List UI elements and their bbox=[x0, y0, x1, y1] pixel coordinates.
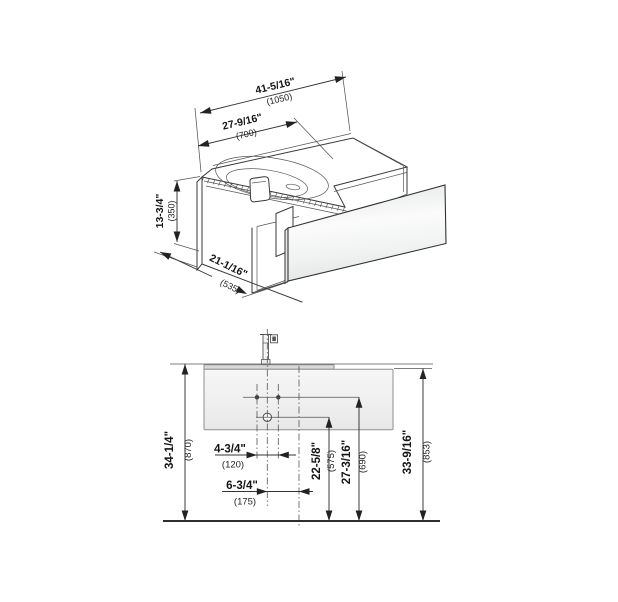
arrowhead bbox=[278, 452, 289, 459]
arrowhead bbox=[174, 181, 181, 192]
dim-depth-mm: (535) bbox=[219, 277, 242, 295]
ext-line-top bbox=[174, 177, 200, 182]
ext-line-front bbox=[242, 282, 288, 298]
hatch-tick bbox=[337, 206, 339, 210]
arrowhead bbox=[420, 511, 427, 522]
arrowhead bbox=[247, 452, 258, 459]
arrowhead bbox=[174, 232, 181, 243]
isometric-view: 41-5/16" (1050) 27-9/16" (700) 13-3/4" (… bbox=[154, 71, 446, 302]
faucet bbox=[261, 335, 278, 365]
hatch-tick bbox=[298, 198, 300, 202]
drawer-box-bottom-front bbox=[252, 282, 288, 294]
cabinet-top-deck bbox=[202, 138, 407, 207]
hatch-tick bbox=[213, 180, 215, 184]
faucet-base bbox=[262, 360, 271, 365]
arrowhead bbox=[420, 369, 427, 380]
arrowhead bbox=[356, 511, 363, 522]
cabinet-front-body bbox=[204, 369, 393, 430]
dim-height-basin-top: 34-1/4" (870) bbox=[164, 364, 194, 521]
dim-575-inches: 22-5/8" bbox=[311, 442, 323, 480]
dim-175-mm: (175) bbox=[234, 497, 256, 508]
basin-front-band bbox=[204, 365, 334, 369]
hatch-tick bbox=[219, 181, 221, 185]
dim-690-inches: 27-3/16" bbox=[341, 440, 353, 484]
dim-drain-height: 22-5/8" (575) bbox=[311, 417, 337, 521]
drawer-box-bottom-inner bbox=[257, 280, 288, 291]
arrowhead bbox=[257, 488, 268, 495]
hatch-tick bbox=[326, 204, 328, 208]
dim-575-mm: (575) bbox=[326, 450, 337, 472]
hatch-tick bbox=[331, 205, 333, 209]
hatch-tick bbox=[343, 207, 345, 211]
arrowhead bbox=[299, 488, 310, 495]
hatch-tick bbox=[315, 201, 317, 205]
arrowhead bbox=[286, 121, 298, 128]
ext-line-bottom bbox=[174, 244, 199, 252]
faucet-block bbox=[250, 177, 270, 202]
hatch-tick bbox=[247, 187, 249, 191]
arrowhead bbox=[198, 140, 210, 147]
hatch-tick bbox=[292, 197, 294, 201]
dim-853-mm: (853) bbox=[422, 441, 433, 463]
front-elevation-view: 34-1/4" (870) 33-9/16" (853) 22-5/8" (57… bbox=[163, 329, 440, 526]
dim-175-inches: 6-3/4" bbox=[226, 480, 258, 492]
hatch-tick bbox=[281, 194, 283, 198]
dim-height-cabinet-top: 33-9/16" (853) bbox=[402, 369, 433, 522]
faucet-spout-inner bbox=[272, 337, 276, 342]
left-side-panel bbox=[197, 177, 202, 270]
arrowhead bbox=[326, 511, 333, 522]
dim-853-inches: 33-9/16" bbox=[402, 430, 414, 474]
dim-height-mm: (350) bbox=[167, 200, 177, 221]
dim-120-mm: (120) bbox=[222, 460, 244, 471]
arrowhead bbox=[182, 364, 189, 375]
dim-height-inches: 13-3/4" bbox=[154, 194, 166, 229]
dim-120-inches: 4-3/4" bbox=[214, 444, 246, 456]
dim-870-mm: (870) bbox=[183, 439, 194, 461]
technical-drawing-page: 41-5/16" (1050) 27-9/16" (700) 13-3/4" (… bbox=[0, 0, 618, 602]
dim-height: 13-3/4" (350) bbox=[154, 177, 200, 252]
dim-870-inches: 34-1/4" bbox=[164, 431, 176, 469]
arrowhead bbox=[335, 76, 347, 83]
hatch-tick bbox=[286, 195, 288, 199]
dim-hole-spacing: 4-3/4" (120) bbox=[214, 444, 296, 471]
arrowhead bbox=[182, 511, 189, 522]
ext-line-left bbox=[195, 108, 201, 172]
hatch-tick bbox=[207, 179, 209, 183]
arrowhead bbox=[160, 252, 171, 260]
arrowhead bbox=[200, 107, 212, 114]
vanity-dimension-drawing: 41-5/16" (1050) 27-9/16" (700) 13-3/4" (… bbox=[0, 0, 618, 602]
dim-depth-inches: 21-1/16" bbox=[207, 252, 249, 281]
ext-line-right bbox=[342, 71, 350, 131]
hatch-tick bbox=[320, 203, 322, 207]
hatch-tick bbox=[309, 200, 311, 204]
dim-depth: 21-1/16" (535) bbox=[154, 252, 288, 298]
hatch-tick bbox=[303, 199, 305, 203]
dim-690-mm: (690) bbox=[358, 451, 369, 473]
